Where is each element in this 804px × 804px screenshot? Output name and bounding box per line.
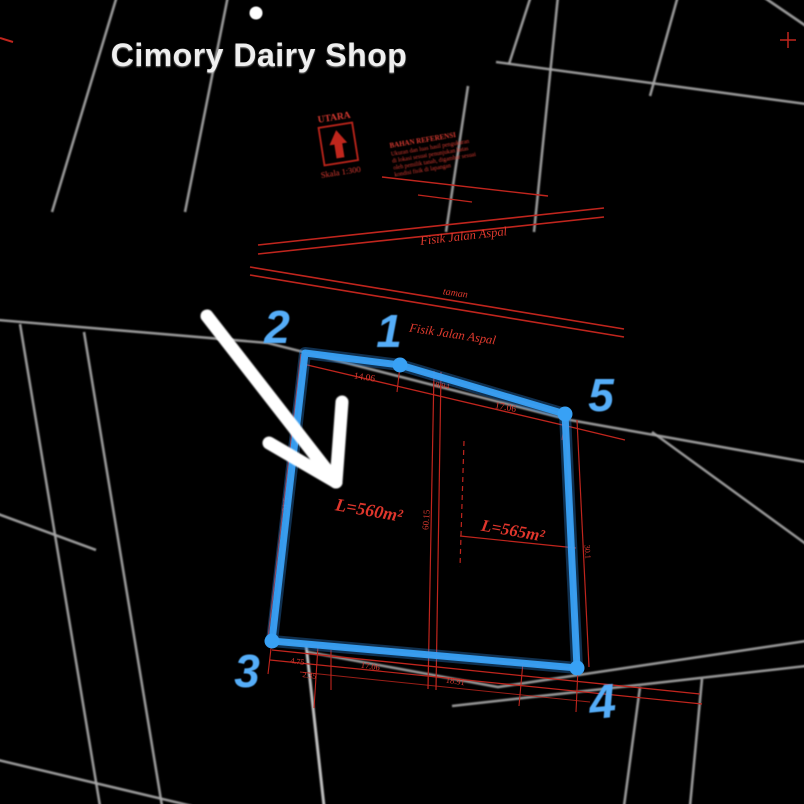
dim-top-1: 14.06 — [353, 371, 376, 384]
road-line — [0, 320, 804, 462]
road-line — [306, 644, 324, 804]
poi-dot — [250, 7, 263, 20]
road-line — [509, 0, 531, 64]
red-road-edge — [250, 267, 624, 329]
vertex-dot-5 — [558, 407, 573, 422]
north-arrow-icon — [327, 129, 349, 159]
dim-bottom-1: 4.75 — [290, 656, 305, 667]
notes-underline-1 — [382, 177, 548, 196]
dim-bottom-3: 17.06 — [360, 660, 380, 673]
dim-bottom-2: 2.35 — [302, 670, 317, 681]
north-arrow: UTARA Skala 1:300 — [312, 111, 362, 181]
vertex-label-1: 1 — [376, 305, 402, 357]
vertex-label-3: 3 — [234, 645, 260, 697]
scale-label: Skala 1:300 — [320, 164, 361, 180]
road-line — [534, 0, 558, 232]
road-line — [0, 760, 192, 804]
road-line — [84, 332, 162, 804]
road-line — [0, 514, 96, 550]
road-label-front: Fisik Jalan Aspal — [407, 321, 497, 348]
setback-line-vertical — [460, 441, 464, 567]
map-canvas: UTARA Skala 1:300 BAHAN REFERENSI Ukuran… — [0, 0, 804, 804]
road-line — [185, 0, 228, 212]
vertex-dot-4 — [570, 661, 585, 676]
survey-map: UTARA Skala 1:300 BAHAN REFERENSI Ukuran… — [0, 0, 804, 804]
red-tick — [0, 38, 13, 42]
vertex-label-4: 4 — [585, 675, 618, 731]
road-line — [624, 687, 640, 804]
dim-line-top — [303, 364, 625, 440]
area-labels: L=560m² L=565m² — [333, 494, 547, 545]
dim-center: 60.15 — [420, 509, 431, 530]
road-label-top: Fisik Jalan Aspal — [418, 224, 508, 248]
road-labels: Fisik Jalan Aspal taman Fisik Jalan Aspa… — [407, 224, 508, 347]
background-roads — [0, 0, 804, 804]
notes-block: BAHAN REFERENSI Ukuran dan luas hasil pe… — [389, 128, 478, 178]
vertex-dot-3 — [265, 634, 280, 649]
road-line — [52, 0, 117, 212]
vertex-label-2: 2 — [263, 301, 290, 353]
road-line — [762, 0, 804, 26]
area-label-left: L=560m² — [333, 494, 405, 526]
road-line — [650, 0, 678, 96]
poi-label: Cimory Dairy Shop — [111, 37, 408, 73]
partition-line-2 — [436, 372, 441, 690]
annotation-arrow-barb-up — [336, 402, 342, 482]
road-label-strip: taman — [442, 286, 468, 300]
road-line — [496, 62, 804, 104]
red-cross-mark — [780, 32, 796, 48]
vertex-label-5: 5 — [588, 369, 615, 421]
vertex-dot-1 — [393, 358, 408, 373]
notes-underline-2 — [418, 195, 472, 202]
dim-right: 30.1 — [583, 545, 593, 560]
road-line — [20, 324, 100, 804]
road-line — [690, 679, 702, 804]
dim-bottom-4: 18.91 — [445, 675, 465, 688]
